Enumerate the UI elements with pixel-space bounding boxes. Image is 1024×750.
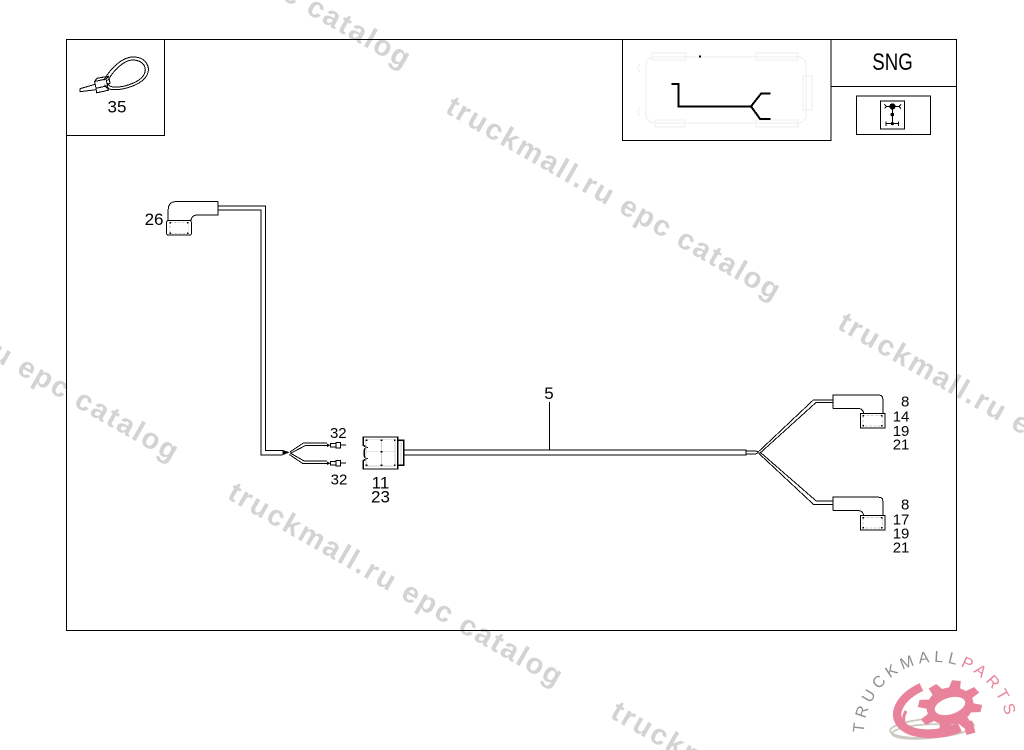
svg-text:35: 35: [108, 98, 127, 117]
svg-text:21: 21: [893, 437, 910, 454]
svg-text:SNG: SNG: [872, 49, 913, 76]
svg-text:5: 5: [544, 384, 553, 403]
svg-text:23: 23: [371, 488, 390, 507]
svg-text:21: 21: [893, 539, 910, 556]
svg-text:32: 32: [331, 472, 348, 489]
svg-text:32: 32: [330, 425, 347, 442]
svg-text:26: 26: [145, 210, 164, 229]
